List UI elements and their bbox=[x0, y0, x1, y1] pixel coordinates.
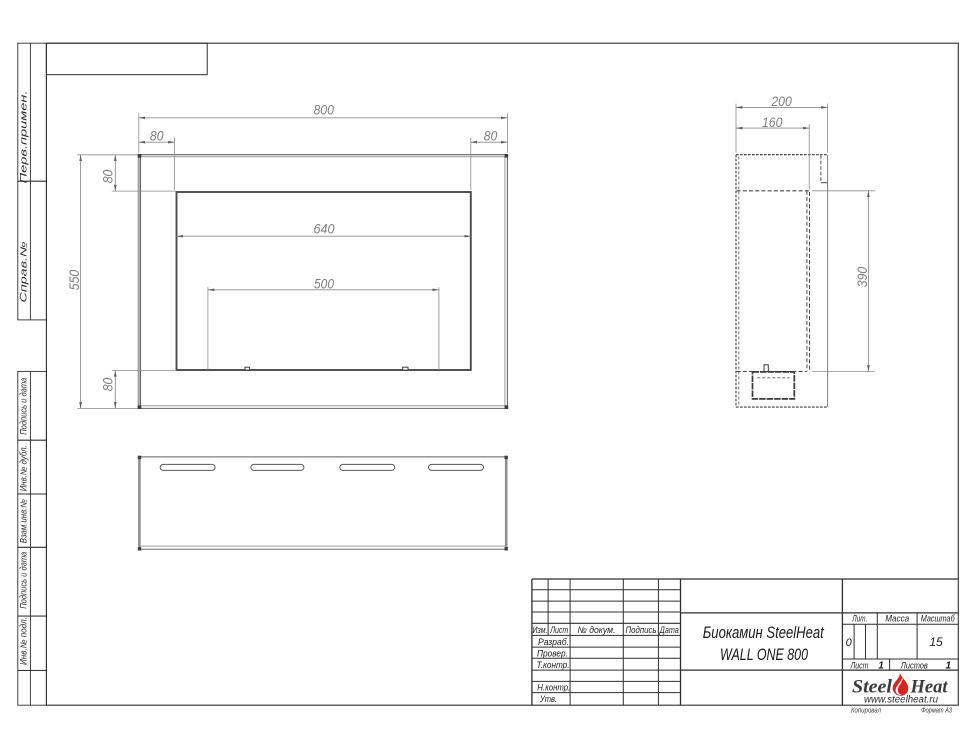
svg-text:Формат А3: Формат А3 bbox=[921, 706, 953, 715]
svg-text:www.steelheat.ru: www.steelheat.ru bbox=[864, 695, 938, 706]
svg-text:Копировал: Копировал bbox=[851, 706, 882, 715]
svg-text:Справ.№: Справ.№ bbox=[19, 242, 29, 303]
svg-text:Инв.№ дубл.: Инв.№ дубл. bbox=[19, 445, 29, 491]
svg-text:Утв.: Утв. bbox=[539, 694, 557, 704]
svg-text:Т.контр.: Т.контр. bbox=[537, 660, 570, 670]
svg-text:Провер.: Провер. bbox=[537, 648, 568, 658]
svg-text:390: 390 bbox=[854, 267, 870, 288]
svg-text:Перв.примен.: Перв.примен. bbox=[19, 91, 29, 184]
svg-text:Лист: Лист bbox=[850, 660, 869, 670]
svg-text:Н.контр.: Н.контр. bbox=[537, 682, 570, 692]
svg-text:Листов: Листов bbox=[900, 660, 928, 670]
svg-text:Изм.: Изм. bbox=[533, 625, 548, 635]
svg-text:Дата: Дата bbox=[659, 625, 679, 635]
svg-text:№ докум.: № докум. bbox=[578, 625, 616, 635]
svg-text:80: 80 bbox=[99, 378, 115, 392]
svg-text:Лит.: Лит. bbox=[852, 613, 868, 623]
svg-text:Биокамин SteelHeat: Биокамин SteelHeat bbox=[703, 624, 825, 642]
svg-text:WALL ONE 800: WALL ONE 800 bbox=[720, 646, 808, 664]
svg-text:200: 200 bbox=[770, 93, 792, 109]
svg-text:550: 550 bbox=[66, 270, 82, 291]
svg-text:Масса: Масса bbox=[885, 613, 909, 623]
svg-text:500: 500 bbox=[314, 276, 334, 292]
svg-text:0: 0 bbox=[846, 637, 853, 649]
svg-text:Подпись и дата: Подпись и дата bbox=[19, 378, 29, 435]
svg-text:80: 80 bbox=[99, 170, 115, 184]
svg-text:Инв.№ подл.: Инв.№ подл. bbox=[19, 617, 29, 665]
svg-text:1: 1 bbox=[946, 660, 952, 671]
svg-text:Подпись и дата: Подпись и дата bbox=[19, 552, 29, 609]
svg-text:80: 80 bbox=[484, 127, 498, 143]
svg-text:Масштаб: Масштаб bbox=[921, 613, 956, 623]
svg-text:Взам.инв.№: Взам.инв.№ bbox=[19, 499, 29, 543]
svg-text:15: 15 bbox=[929, 635, 943, 649]
svg-text:Лист: Лист bbox=[549, 625, 568, 635]
svg-text:Разраб.: Разраб. bbox=[538, 637, 569, 647]
svg-text:Подпись: Подпись bbox=[626, 625, 657, 635]
svg-text:1: 1 bbox=[878, 660, 884, 671]
svg-text:80: 80 bbox=[150, 127, 164, 143]
svg-text:160: 160 bbox=[762, 114, 783, 130]
svg-text:640: 640 bbox=[314, 221, 335, 237]
svg-text:800: 800 bbox=[313, 101, 334, 117]
